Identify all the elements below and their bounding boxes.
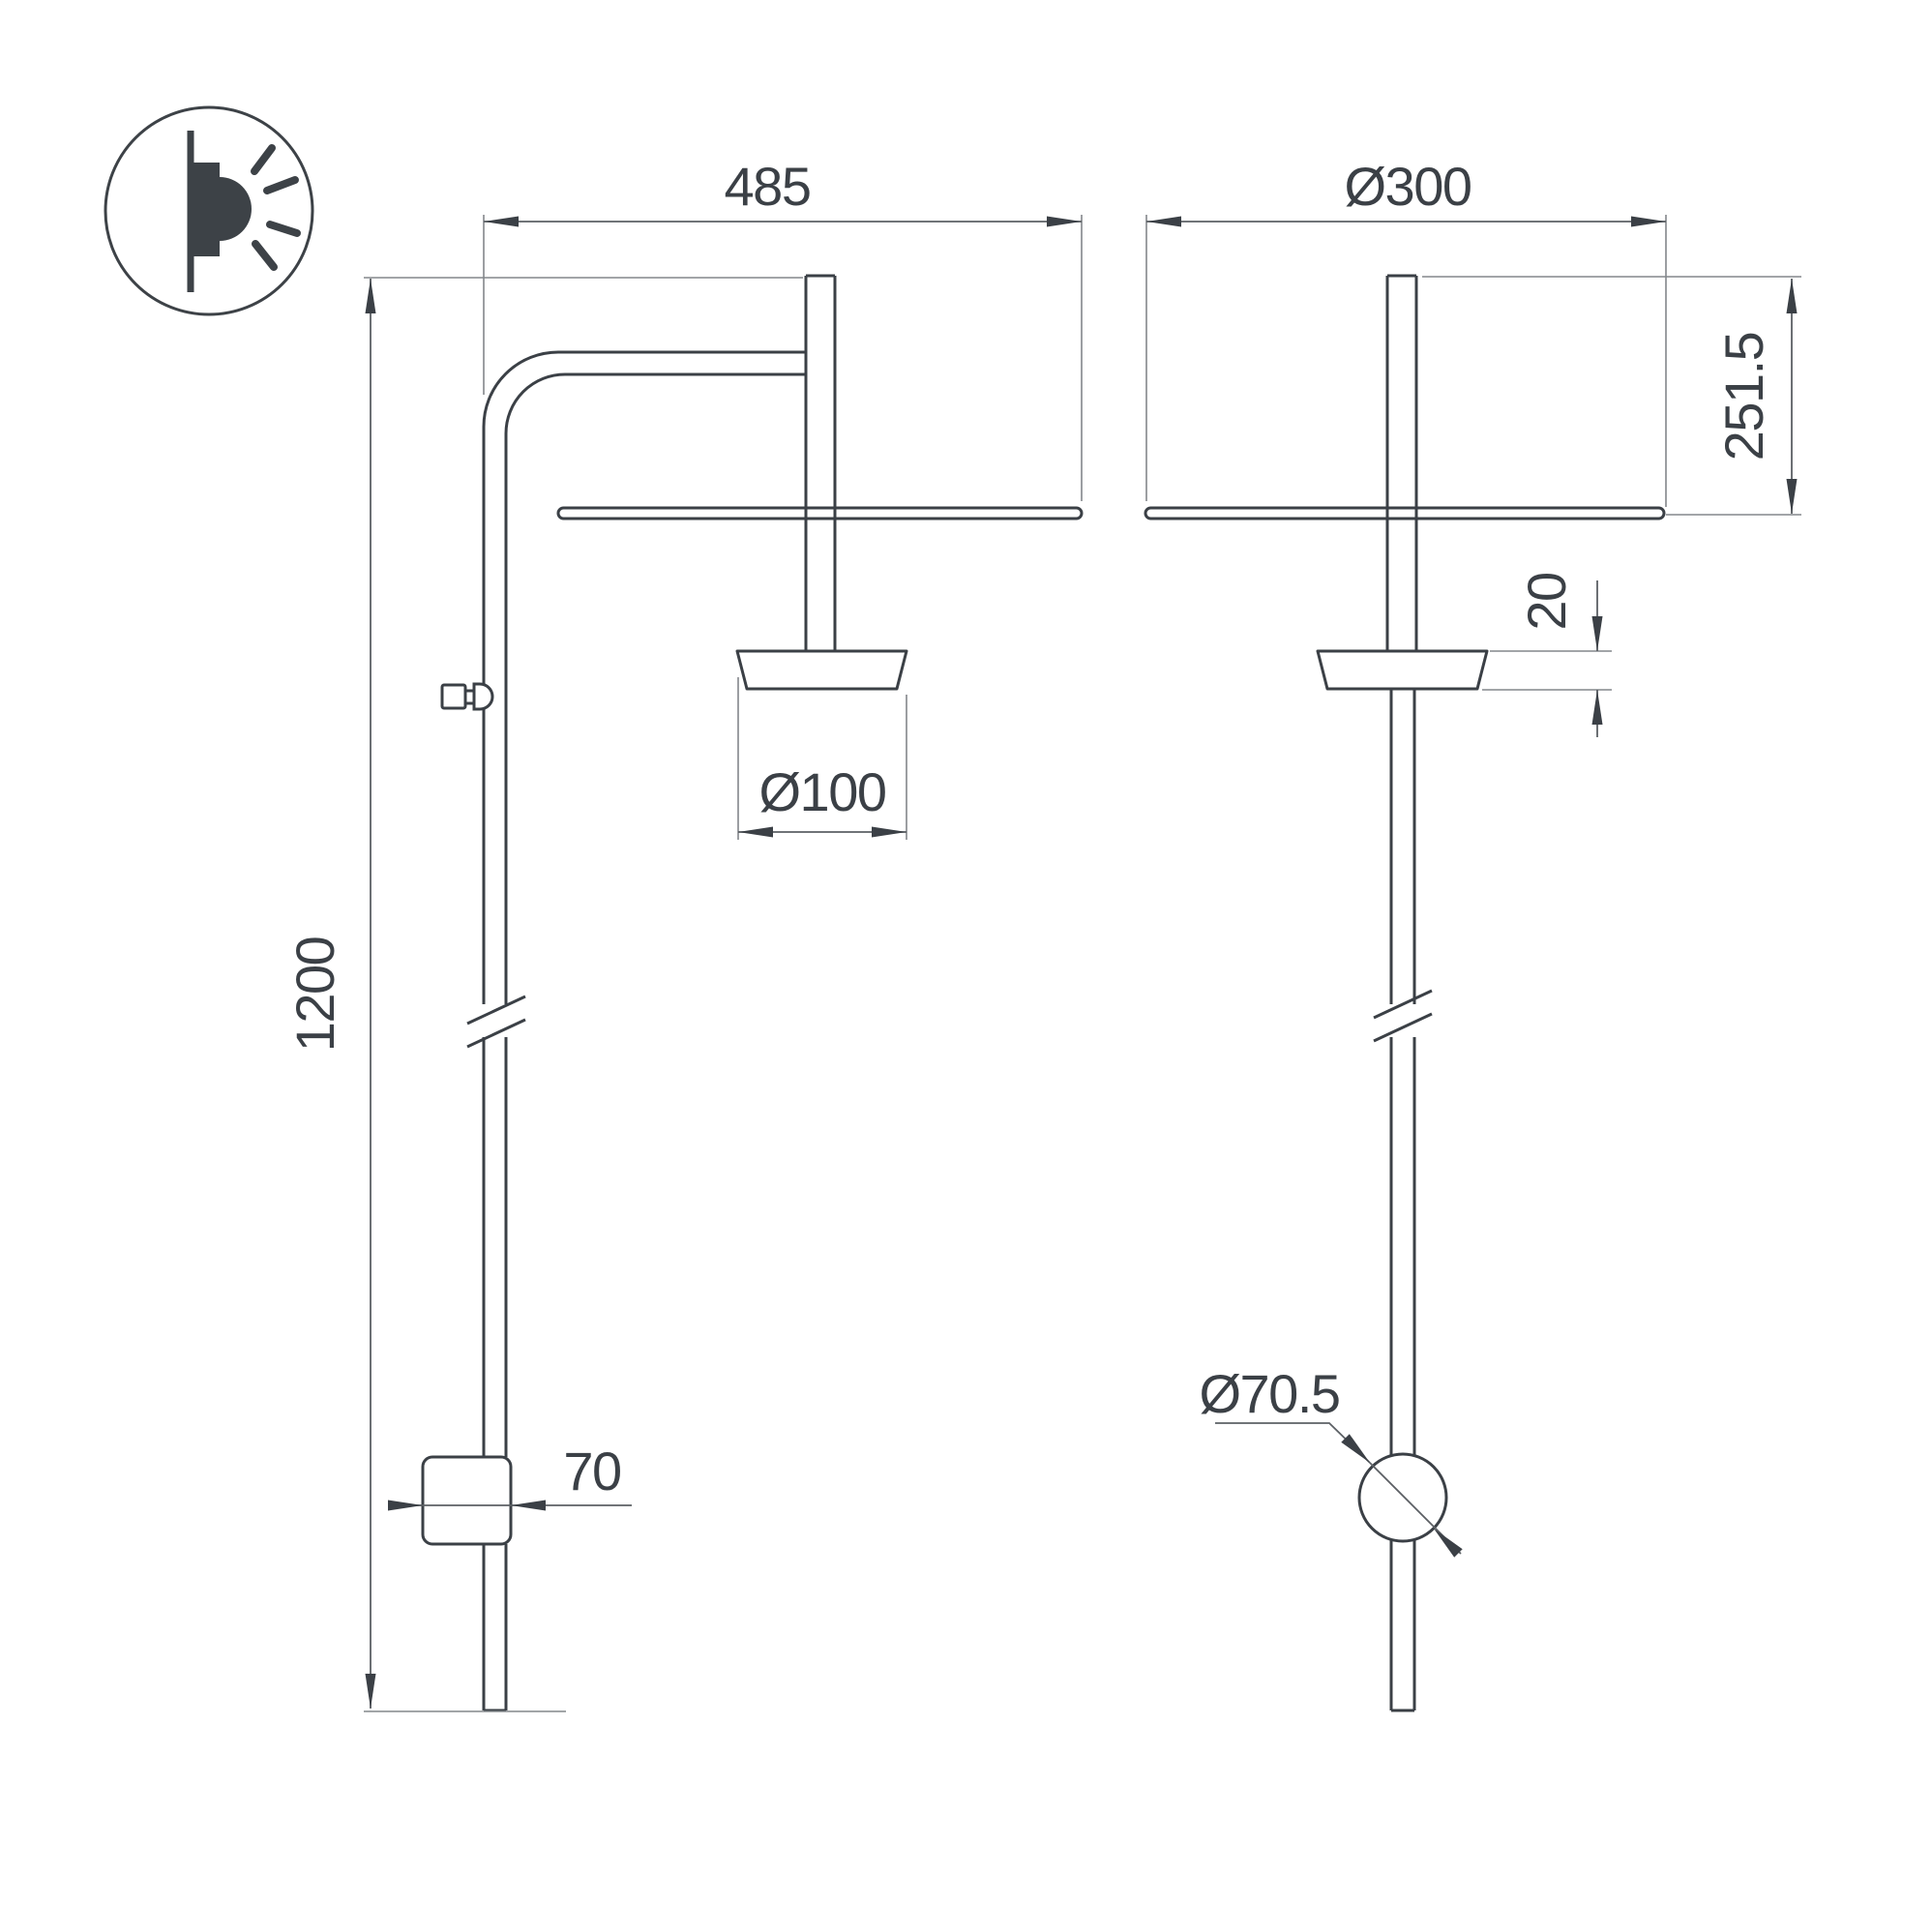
front-light-cup bbox=[737, 651, 907, 689]
dim-cup-diameter-label: Ø100 bbox=[759, 761, 886, 822]
side-disc-shade bbox=[1145, 508, 1664, 519]
side-pole-break-mark bbox=[1374, 991, 1432, 1041]
dim-shade-offset-label: 20 bbox=[1516, 573, 1577, 630]
icon-light-rays bbox=[254, 148, 297, 267]
dim-pole-height: 1200 bbox=[284, 278, 803, 1711]
front-disc-shade bbox=[558, 508, 1082, 519]
drawing-sheet: 485 Ø300 1200 70 Ø100 251.5 bbox=[0, 0, 1932, 1932]
front-switch-knob bbox=[442, 684, 492, 709]
dim-bracket-width-label: 70 bbox=[563, 1441, 620, 1501]
wall-lamp-side-glow-icon bbox=[105, 107, 312, 314]
front-wall-bracket bbox=[423, 1457, 511, 1544]
front-upper-rod bbox=[806, 276, 835, 651]
side-light-cup bbox=[1318, 651, 1487, 689]
front-pole-break-mark bbox=[467, 996, 525, 1047]
dim-pole-height-label: 1200 bbox=[284, 937, 345, 1053]
dim-head-drop: 251.5 bbox=[1422, 277, 1801, 515]
side-mount-circle bbox=[1359, 1454, 1446, 1541]
dim-shade-diameter-label: Ø300 bbox=[1345, 156, 1471, 217]
side-view bbox=[1145, 276, 1664, 1710]
side-pole bbox=[1391, 690, 1414, 1710]
dim-arm-reach-label: 485 bbox=[725, 156, 811, 217]
front-view bbox=[442, 276, 1082, 1710]
front-arm-inner bbox=[506, 374, 806, 433]
dim-shade-diameter: Ø300 bbox=[1146, 156, 1666, 507]
dim-mount-diameter-label: Ø70.5 bbox=[1199, 1363, 1339, 1424]
technical-drawing: 485 Ø300 1200 70 Ø100 251.5 bbox=[0, 0, 1932, 1932]
dim-arm-reach: 485 bbox=[484, 156, 1082, 501]
icon-light-dome bbox=[220, 177, 252, 241]
icon-fixture-body bbox=[193, 163, 220, 256]
dim-cup-diameter: Ø100 bbox=[738, 677, 907, 840]
dim-shade-offset: 20 bbox=[1482, 573, 1612, 737]
front-arm-outer bbox=[484, 352, 806, 427]
dim-head-drop-label: 251.5 bbox=[1713, 333, 1774, 461]
side-upper-rod bbox=[1387, 276, 1416, 651]
